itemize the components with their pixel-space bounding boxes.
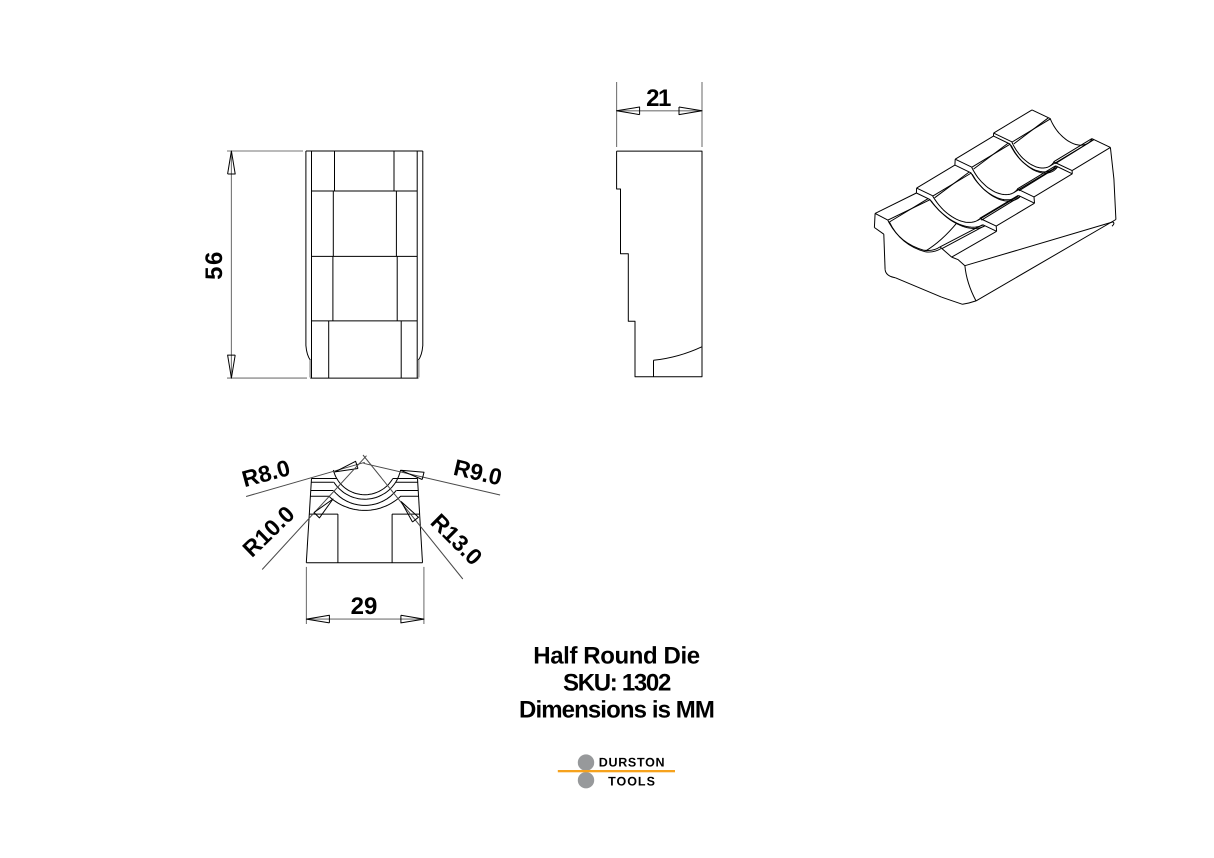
svg-text:SKU: 1302: SKU: 1302 <box>563 670 671 697</box>
svg-text:Dimensions is MM: Dimensions is MM <box>519 697 714 724</box>
svg-text:56: 56 <box>201 250 228 280</box>
svg-text:29: 29 <box>351 593 378 620</box>
svg-text:R8.0: R8.0 <box>239 454 293 492</box>
svg-text:R9.0: R9.0 <box>451 454 504 490</box>
svg-text:21: 21 <box>646 85 671 112</box>
svg-text:TOOLS: TOOLS <box>608 775 656 789</box>
svg-text:DURSTON: DURSTON <box>599 756 665 770</box>
svg-text:R13.0: R13.0 <box>426 508 488 570</box>
svg-text:Half Round Die: Half Round Die <box>533 643 699 670</box>
svg-text:R10.0: R10.0 <box>237 501 299 562</box>
